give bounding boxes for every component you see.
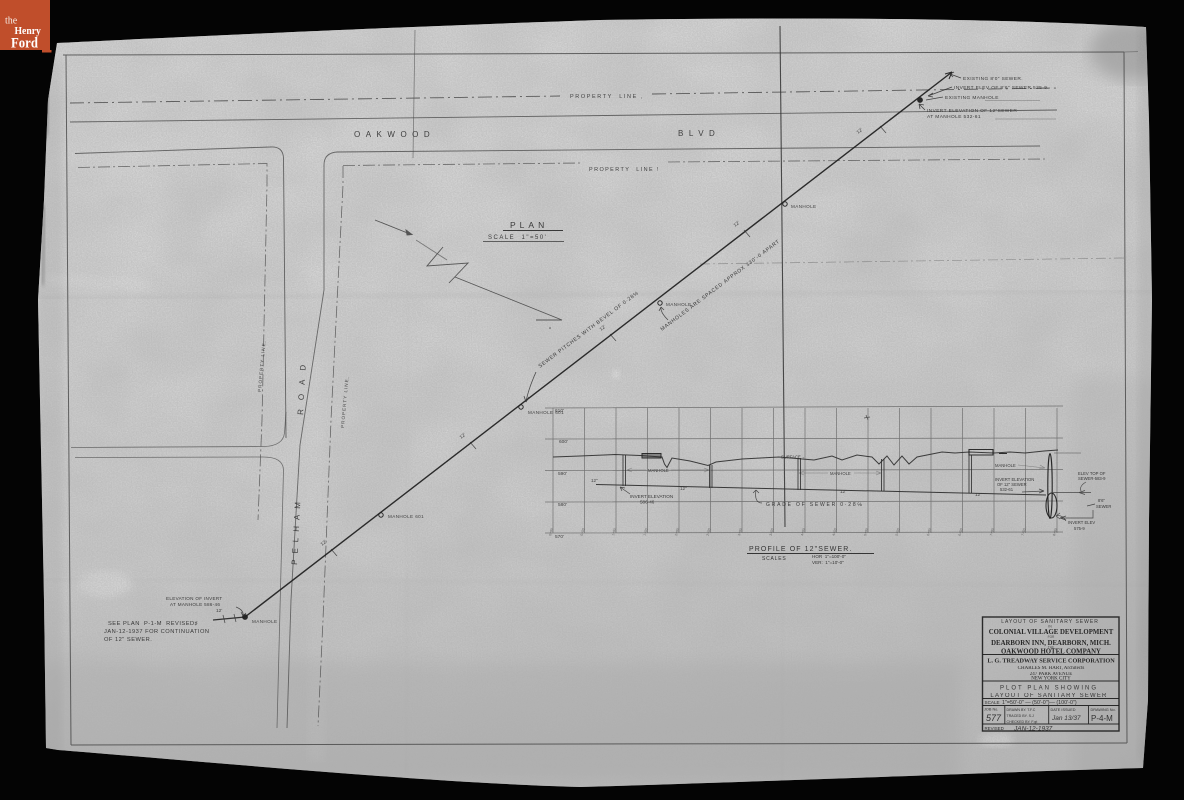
svg-text:1"=50'-0" — (50'-0")— (100'-0": 1"=50'-0" — (50'-0")— (100'-0"): [1002, 700, 1077, 706]
svg-text:580': 580': [558, 502, 567, 508]
svg-text:FOR: FOR: [1048, 635, 1055, 639]
svg-text:HOR 1"=100'-0": HOR 1"=100'-0": [812, 554, 846, 559]
svg-text:DATE ISSUED: DATE ISSUED: [1051, 708, 1076, 712]
svg-text:NEW YORK CITY: NEW YORK CITY: [1031, 677, 1071, 682]
svg-text:8'6": 8'6": [1098, 498, 1105, 503]
svg-text:PROPERTY LINE ‚: PROPERTY LINE ‚: [570, 94, 644, 100]
svg-text:MANHOLE: MANHOLE: [252, 619, 278, 624]
svg-text:GRADE OF SEWER 0·28℅: GRADE OF SEWER 0·28℅: [766, 502, 864, 508]
svg-text:INVERT ELEVATION: INVERT ELEVATION: [630, 494, 673, 499]
svg-text:EXISTING 8'0" SEWER.: EXISTING 8'0" SEWER.: [963, 76, 1023, 82]
svg-text:Jan 13/37: Jan 13/37: [1051, 715, 1081, 722]
svg-text:OF 12" SEWER.: OF 12" SEWER.: [104, 637, 152, 643]
svg-text:12": 12": [975, 492, 982, 497]
svg-text:MANHOLE: MANHOLE: [995, 463, 1016, 468]
svg-text:ELEVATION OF INVERT: ELEVATION OF INVERT: [166, 596, 223, 601]
svg-text:JOB No.: JOB No.: [984, 708, 998, 712]
svg-text:SCALE: SCALE: [985, 700, 1000, 705]
svg-text:SEE PLAN P-1-M REVISED♯: SEE PLAN P-1-M REVISED♯: [108, 621, 198, 627]
svg-text:TRACED BY. S.J: TRACED BY. S.J: [1007, 714, 1034, 718]
svg-text:SCALE 1"=50': SCALE 1"=50': [488, 235, 547, 241]
svg-text:PROPERTY LINE !: PROPERTY LINE !: [589, 167, 660, 173]
svg-text:MANHOLE: MANHOLE: [648, 468, 669, 473]
svg-text:EXISTING MANHOLE: EXISTING MANHOLE: [945, 95, 999, 101]
svg-text:12": 12": [680, 486, 687, 491]
svg-text:AT MANHOLE 532-61: AT MANHOLE 532-61: [927, 114, 981, 120]
svg-text:MANHOLE: MANHOLE: [830, 471, 851, 476]
svg-text:REVISED: REVISED: [985, 726, 1004, 731]
svg-text:575-9: 575-9: [1074, 526, 1085, 531]
svg-text:610': 610': [555, 408, 564, 414]
svg-text:PROFILE OF 12"SEWER.: PROFILE OF 12"SEWER.: [749, 546, 852, 553]
svg-text:OAKWOOD HOTEL COMPANY: OAKWOOD HOTEL COMPANY: [1001, 649, 1101, 656]
svg-text:PLAN: PLAN: [510, 220, 548, 230]
svg-text:L. G. TREADWAY SERVICE CORPORA: L. G. TREADWAY SERVICE CORPORATION: [987, 658, 1115, 665]
svg-text:OAKWOOD: OAKWOOD: [354, 130, 435, 139]
svg-text:IN: IN: [1048, 625, 1052, 629]
svg-text:SEWER-583-9: SEWER-583-9: [1078, 476, 1106, 481]
svg-text:Ford: Ford: [11, 35, 38, 51]
svg-text:SCALES: SCALES: [762, 556, 787, 562]
svg-text:590': 590': [558, 471, 567, 477]
svg-text:SURFACE→: SURFACE→: [781, 455, 805, 460]
svg-text:CHARLES M. HART, Architects: CHARLES M. HART, Architects: [1018, 666, 1085, 671]
svg-text:532-61: 532-61: [1000, 487, 1014, 492]
svg-text:MANHOLE 601: MANHOLE 601: [388, 514, 424, 519]
svg-text:BLVD: BLVD: [678, 129, 720, 138]
svg-text:12": 12": [840, 489, 847, 494]
svg-text:SEWER: SEWER: [1096, 504, 1111, 509]
svg-text:12': 12': [216, 608, 222, 614]
svg-text:JAN-12-1937: JAN-12-1937: [1013, 726, 1053, 733]
svg-text:INVERT ELEV: INVERT ELEV: [1068, 520, 1095, 525]
svg-text:JAN-12-1937 FOR CONTINUATION: JAN-12-1937 FOR CONTINUATION: [104, 629, 210, 635]
svg-text:INVERT ELEVATION OF 12"SEWER: INVERT ELEVATION OF 12"SEWER: [927, 108, 1017, 114]
svg-text:DRAWN BY. T.F.C: DRAWN BY. T.F.C: [1007, 708, 1036, 712]
svg-text:LAYOUT OF SANITARY SEWER: LAYOUT OF SANITARY SEWER: [990, 693, 1107, 699]
svg-text:P-4-M: P-4-M: [1091, 714, 1113, 723]
svg-text:PLOT PLAN SHOWING: PLOT PLAN SHOWING: [1000, 686, 1098, 692]
svg-text:VER: 1"=10'-0": VER: 1"=10'-0": [812, 560, 844, 565]
svg-text:586-46: 586-46: [640, 500, 655, 505]
svg-text:DRAWING No.: DRAWING No.: [1091, 708, 1116, 712]
svg-text:CHECKED BY. F.gt: CHECKED BY. F.gt: [1007, 720, 1038, 724]
svg-text:570': 570': [555, 534, 564, 540]
svg-text:INVERT ELEV OF 8'6" SEWER 535-: INVERT ELEV OF 8'6" SEWER 535-9.: [954, 85, 1049, 91]
svg-text:600': 600': [559, 439, 568, 445]
svg-text:MANHOLE: MANHOLE: [791, 204, 817, 209]
svg-text:577: 577: [986, 713, 1002, 723]
svg-text:12": 12": [591, 478, 598, 483]
svg-text:AT MANHOLE 586-46: AT MANHOLE 586-46: [170, 602, 220, 607]
